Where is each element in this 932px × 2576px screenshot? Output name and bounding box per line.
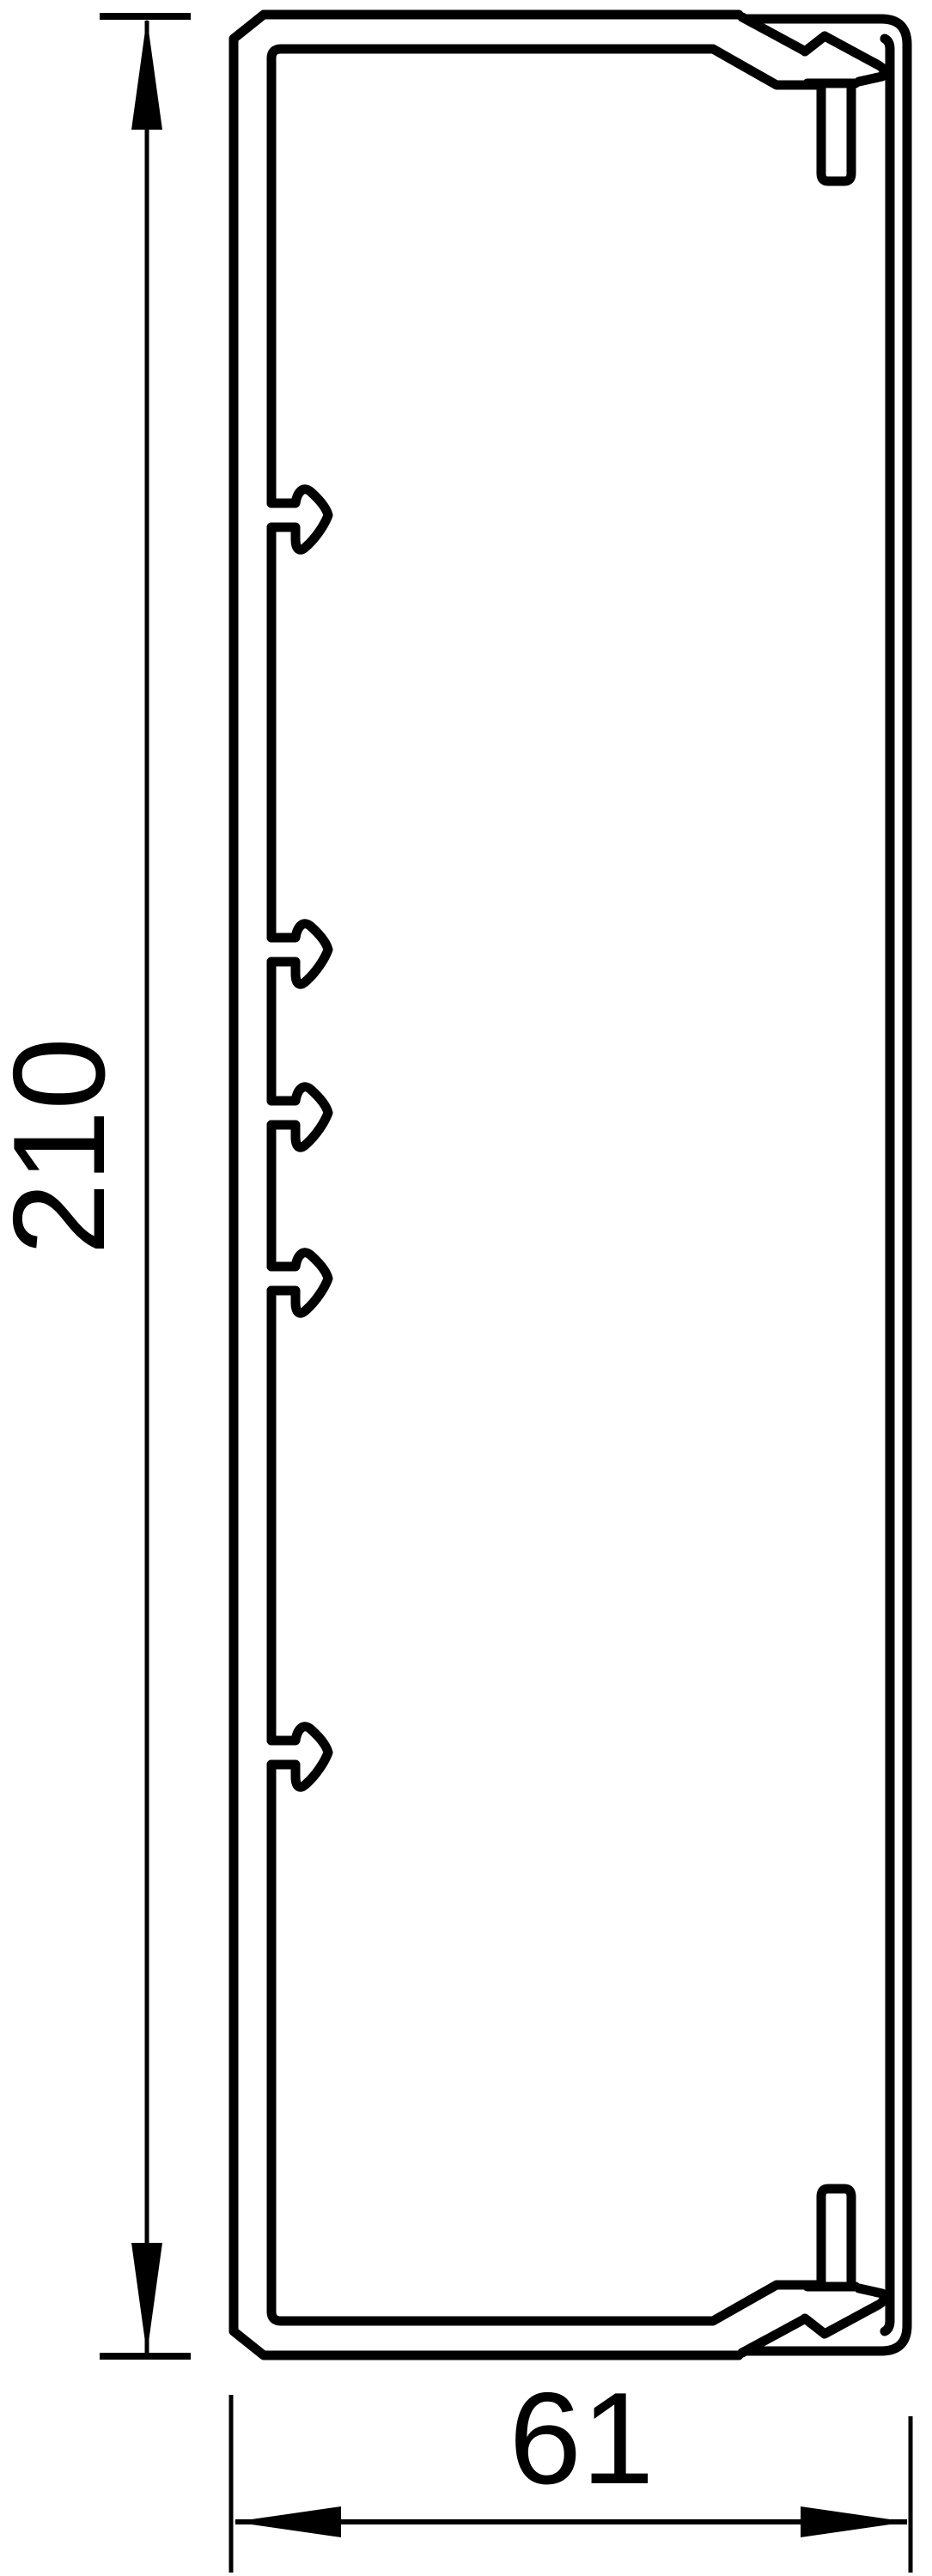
trunking-cross-section-drawing: 210 61 <box>0 0 932 2576</box>
cover-latch-top <box>265 15 907 1186</box>
hook-2 <box>271 924 328 984</box>
width-dim-arrow-left-icon <box>234 2506 341 2537</box>
height-dim-arrow-up-icon <box>131 18 162 130</box>
width-dim-arrow-right-icon <box>801 2506 908 2537</box>
height-dim-label: 210 <box>0 1037 132 1255</box>
technical-drawing-page: 210 61 <box>0 0 932 2576</box>
dimension-annotations: 210 61 <box>0 16 911 2573</box>
width-dim-label: 61 <box>509 2366 654 2512</box>
width-dimension: 61 <box>231 2366 911 2573</box>
hook-4 <box>271 1253 328 1313</box>
hook-1 <box>271 489 328 550</box>
profile-outline <box>234 15 907 2355</box>
left-wall-outer <box>234 15 264 2355</box>
hook-5 <box>271 1727 328 1787</box>
hook-3 <box>271 1087 328 1147</box>
retaining-hooks <box>271 489 328 1787</box>
height-dimension: 210 <box>0 16 191 2356</box>
height-dim-arrow-down-icon <box>131 2243 162 2354</box>
cover-latch-bottom <box>265 1184 907 2355</box>
